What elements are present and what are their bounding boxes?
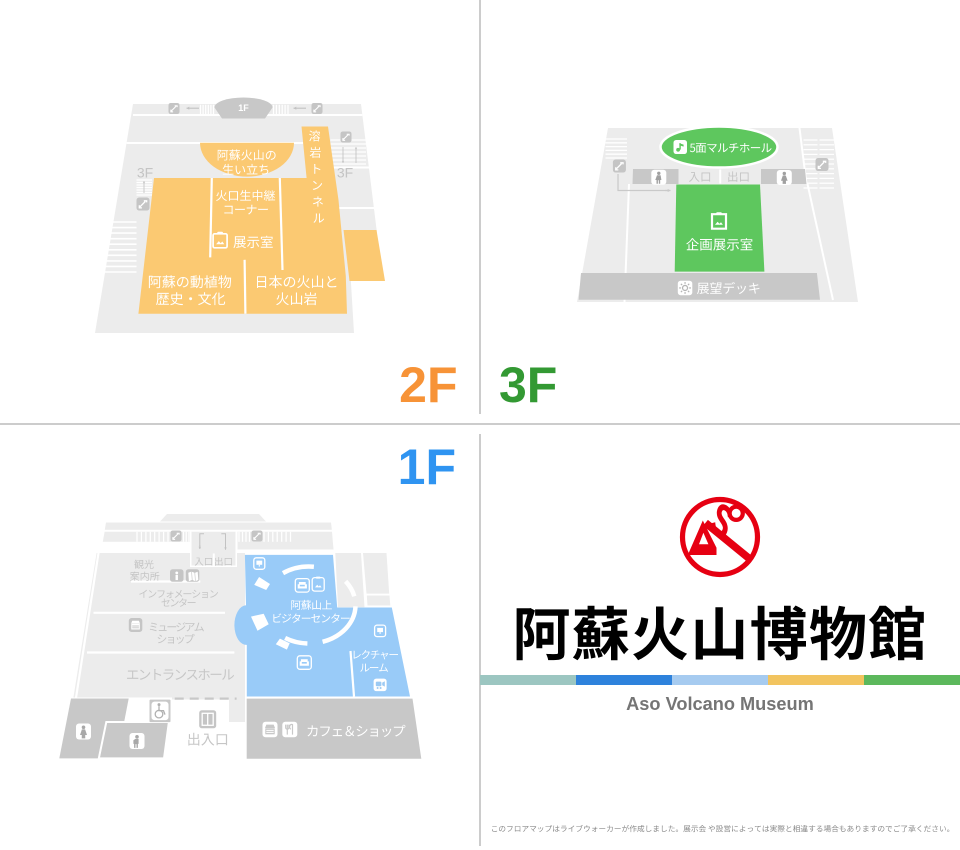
- svg-text:Aso Volcano Museum: Aso Volcano Museum: [626, 694, 814, 714]
- svg-text:1F: 1F: [398, 439, 456, 495]
- svg-text:3F: 3F: [137, 165, 153, 181]
- svg-text:1F: 1F: [238, 103, 249, 113]
- svg-text:3F: 3F: [499, 357, 557, 413]
- svg-text:3F: 3F: [337, 165, 353, 181]
- svg-text:2F: 2F: [399, 357, 457, 413]
